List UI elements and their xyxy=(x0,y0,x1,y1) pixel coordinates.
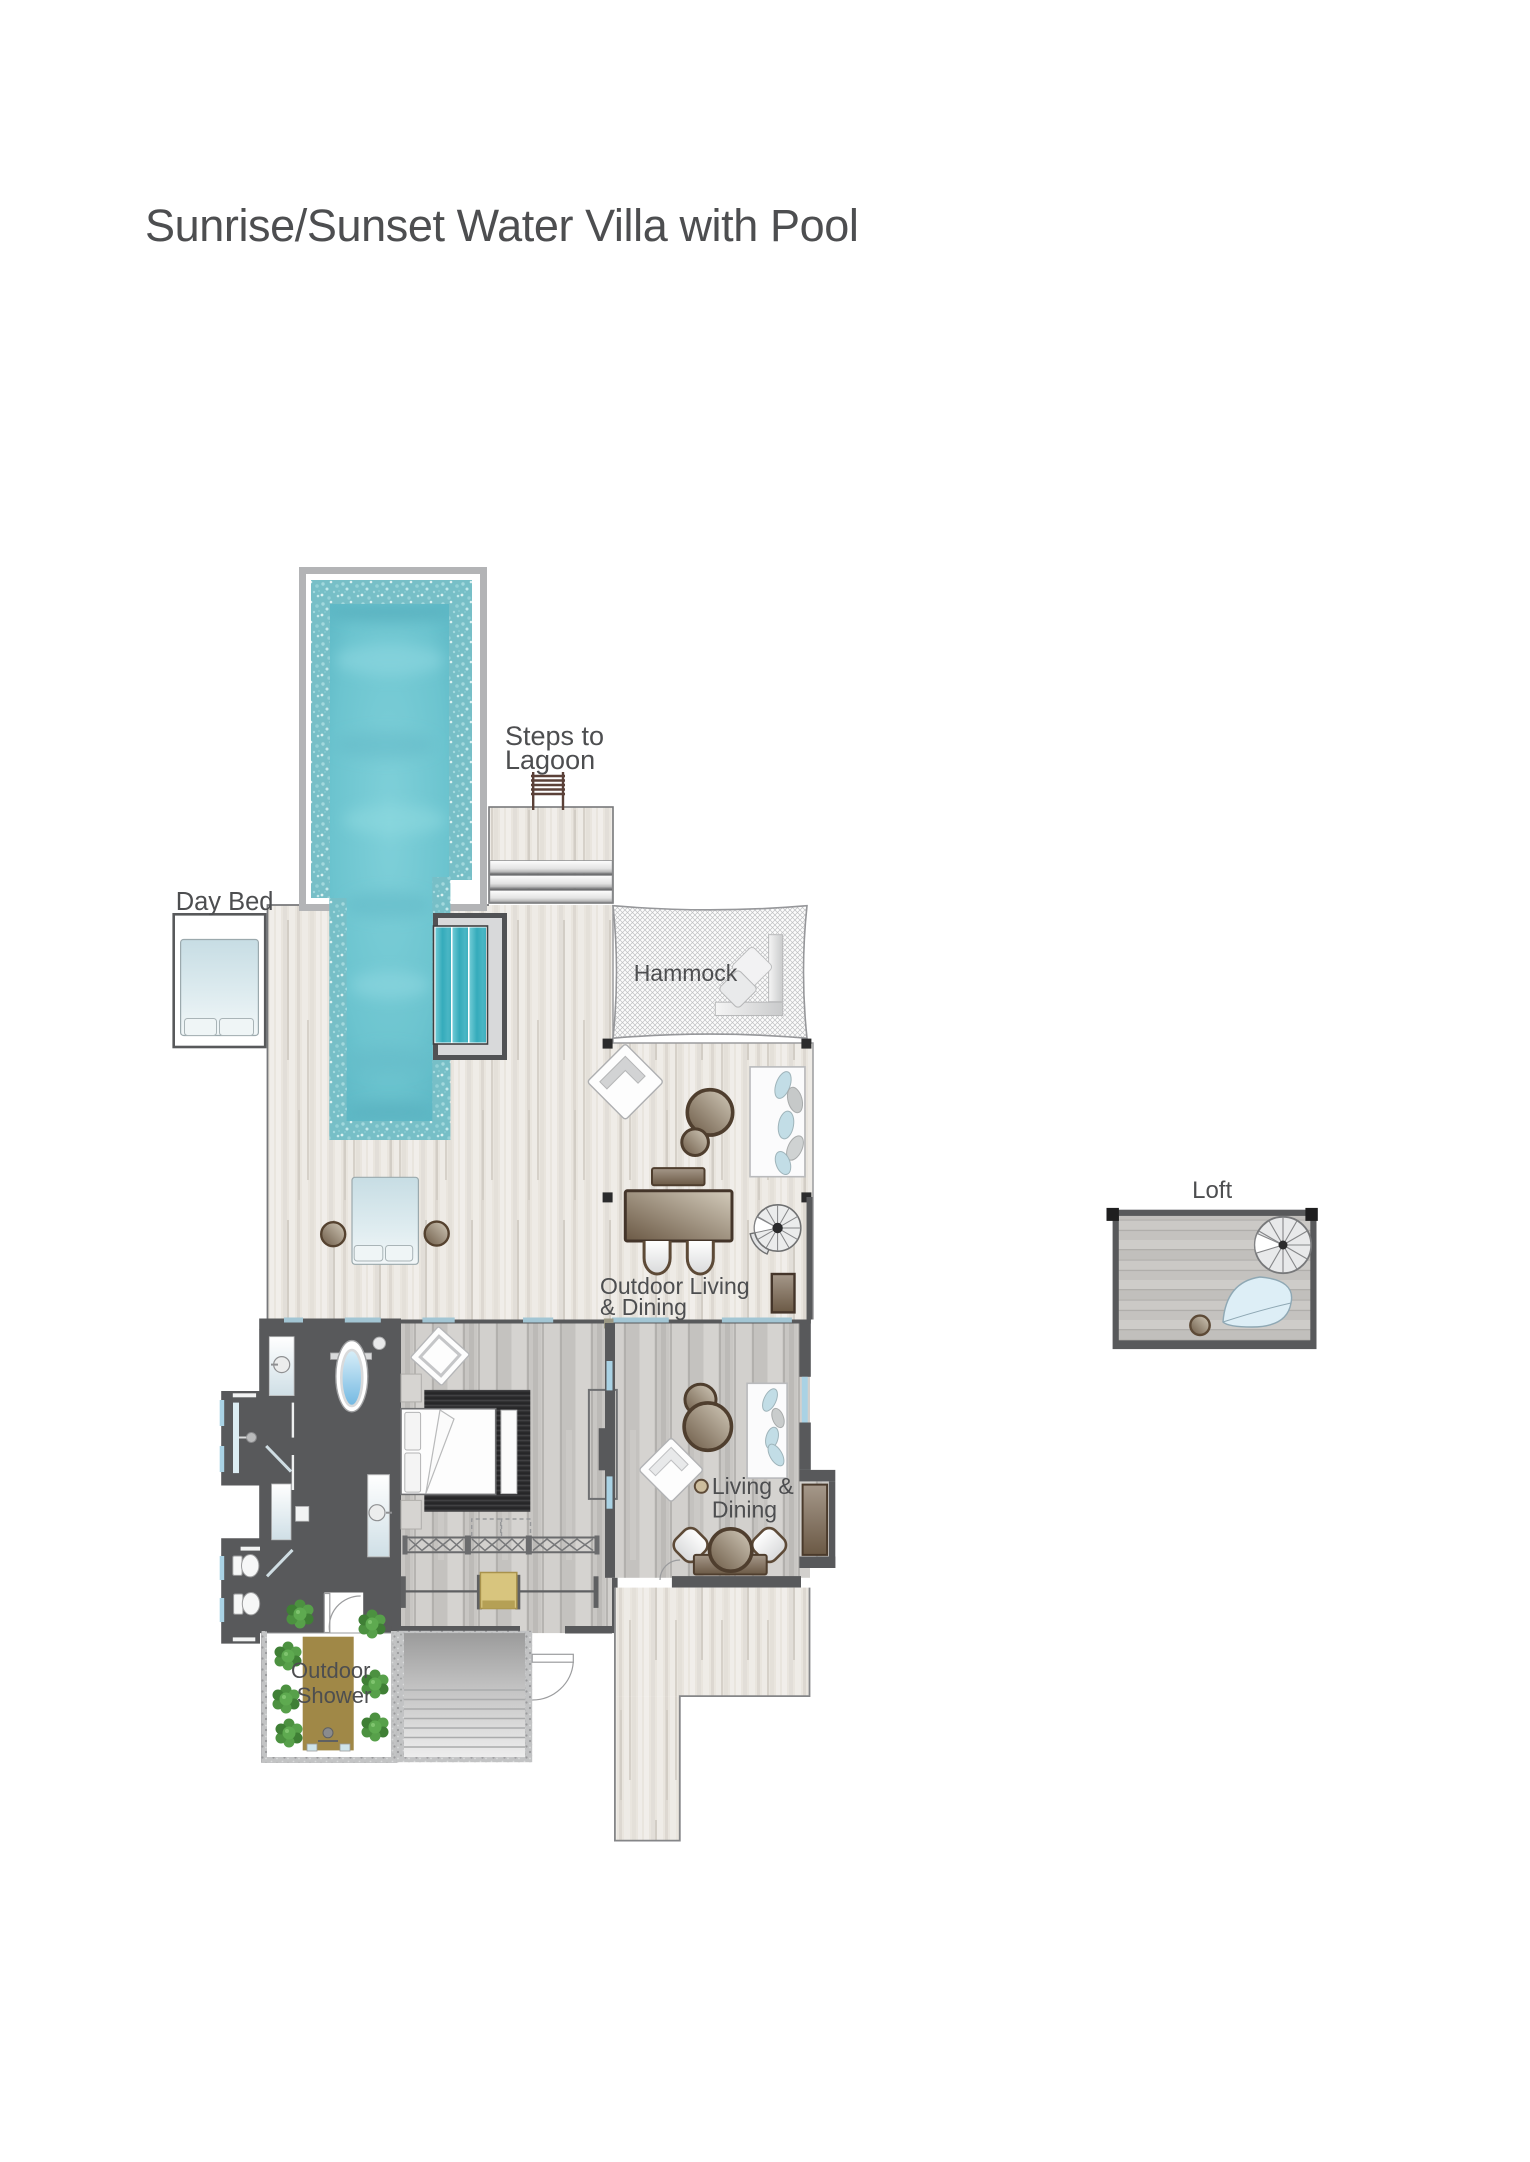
svg-text:& Dining: & Dining xyxy=(600,1294,687,1320)
svg-text:Lagoon: Lagoon xyxy=(505,745,595,775)
svg-text:Dining: Dining xyxy=(712,1497,777,1523)
svg-text:Loft: Loft xyxy=(1192,1177,1232,1204)
svg-text:Shower: Shower xyxy=(297,1683,372,1708)
svg-text:Day Bed: Day Bed xyxy=(176,888,274,916)
svg-text:Outdoor: Outdoor xyxy=(291,1658,371,1683)
svg-text:Hammock: Hammock xyxy=(634,960,738,986)
svg-text:Living &: Living & xyxy=(712,1473,794,1499)
svg-text:Sunrise/Sunset Water Villa wit: Sunrise/Sunset Water Villa with Pool xyxy=(145,200,858,251)
